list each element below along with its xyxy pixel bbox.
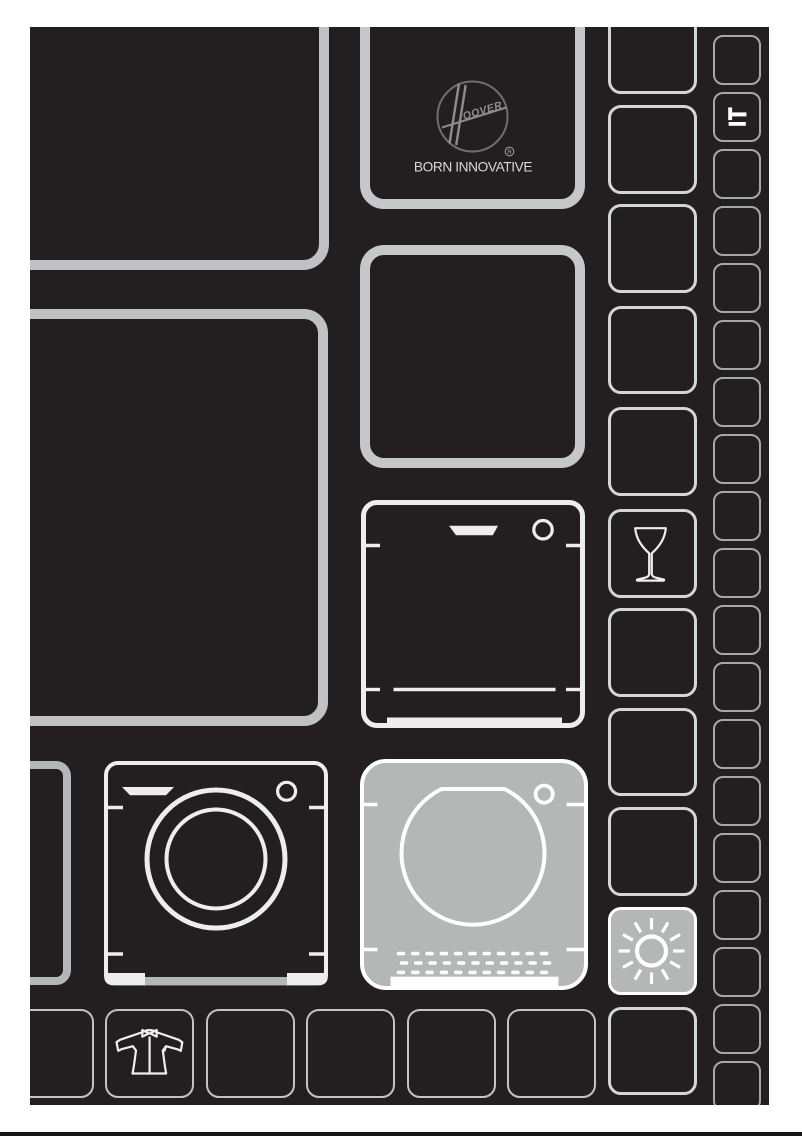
svg-text:BORN INNOVATIVE: BORN INNOVATIVE [414, 160, 532, 175]
svg-text:R: R [507, 150, 512, 156]
svg-text:OOVER: OOVER [461, 99, 504, 122]
